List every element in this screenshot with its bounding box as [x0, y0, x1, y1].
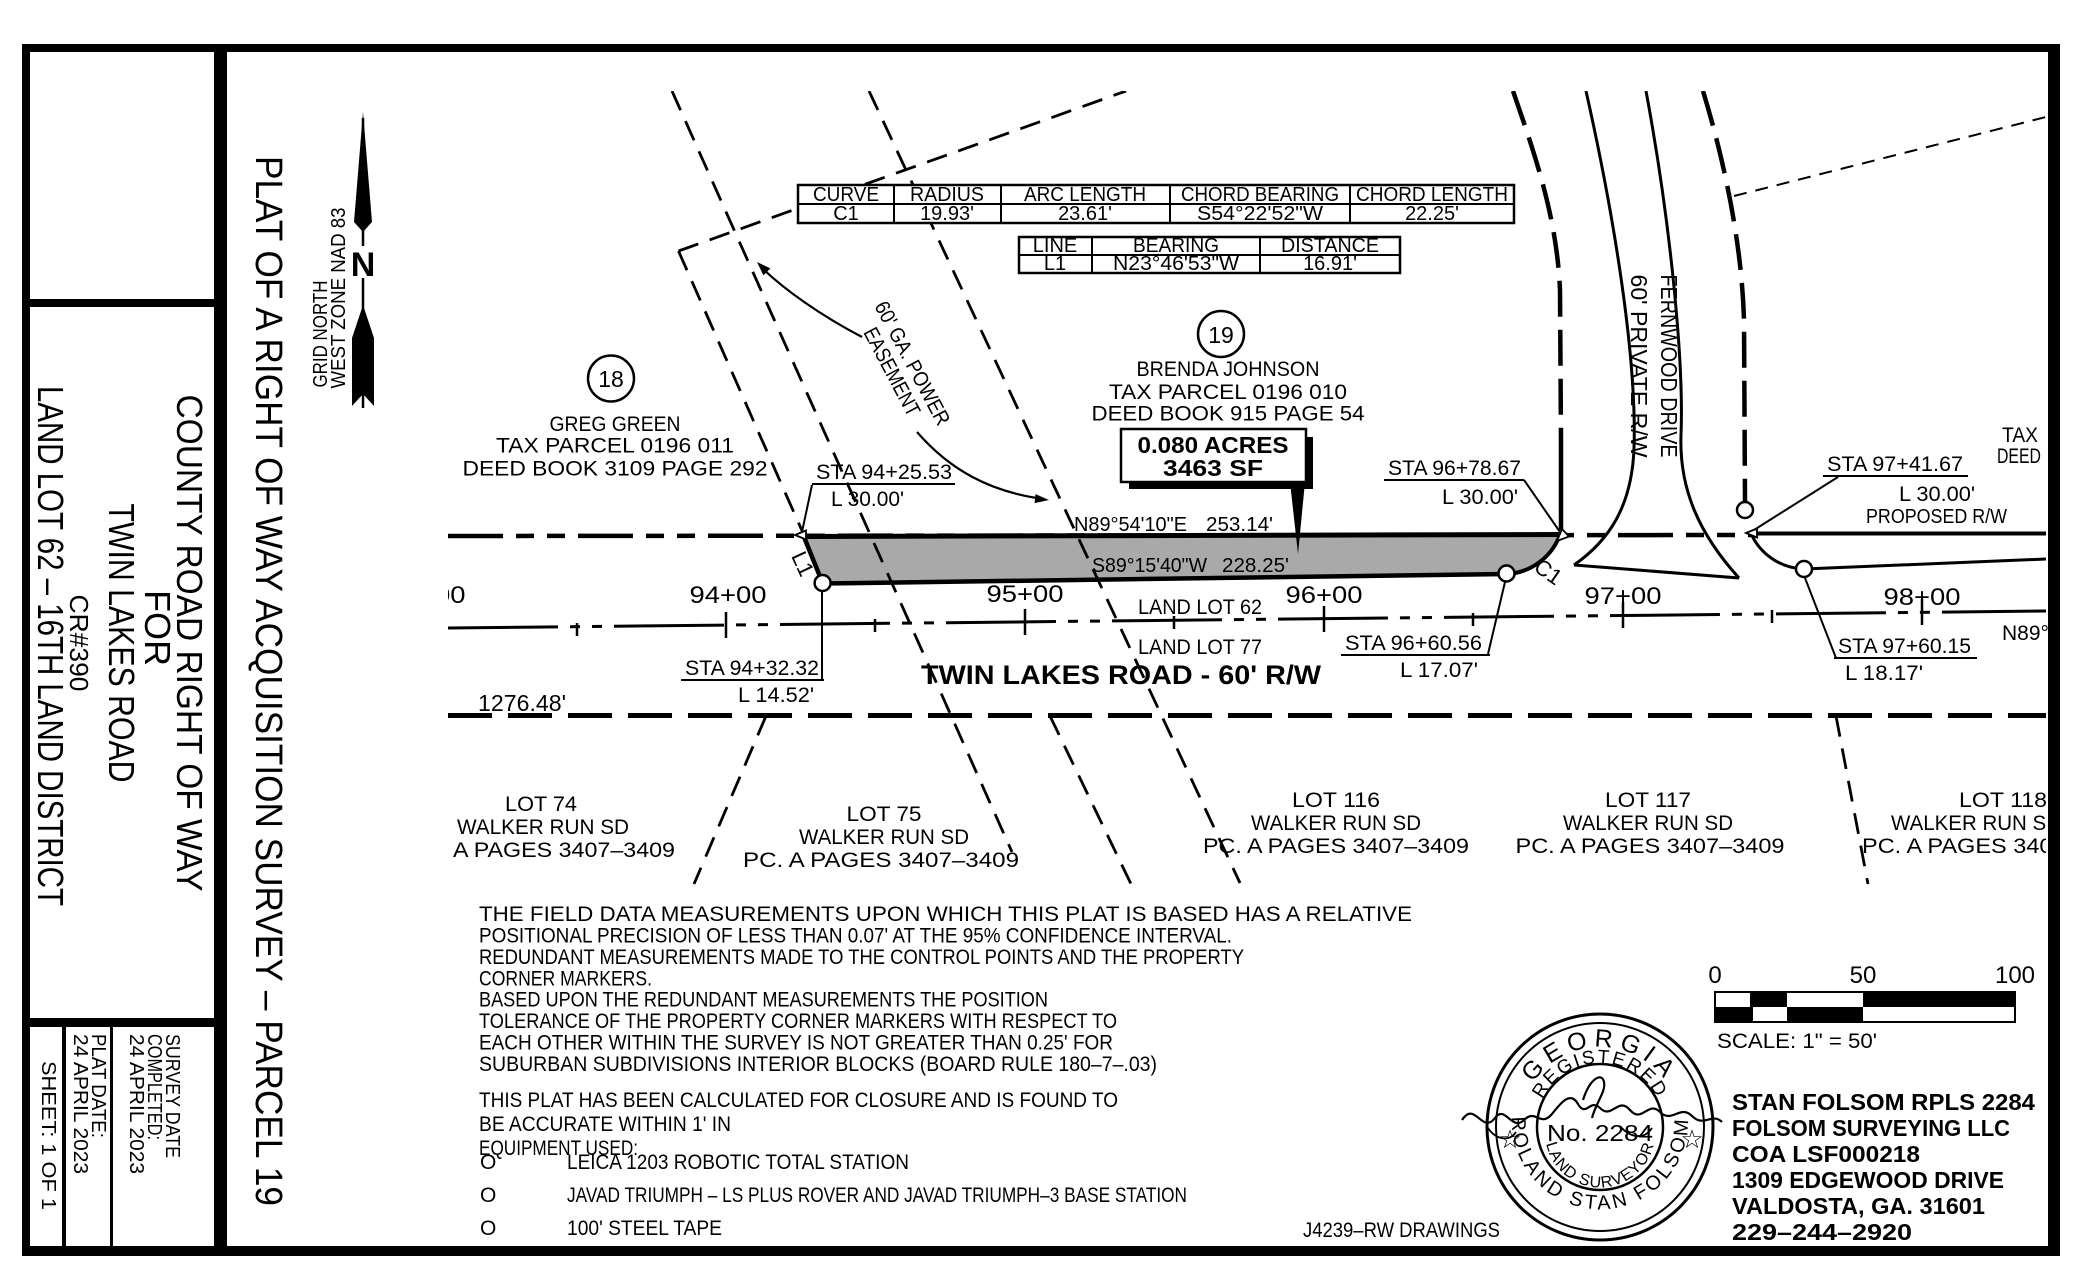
svg-text:LAND LOT 77: LAND LOT 77: [1138, 636, 1262, 659]
svg-text:60' PRIVATE R/W: 60' PRIVATE R/W: [1626, 275, 1652, 458]
svg-text:100' STEEL TAPE: 100' STEEL TAPE: [567, 1217, 722, 1240]
svg-text:253.14': 253.14': [1206, 514, 1273, 536]
svg-text:1276.48': 1276.48': [478, 690, 566, 716]
svg-text:97+00: 97+00: [1585, 583, 1662, 610]
svg-text:LAND LOT 62: LAND LOT 62: [1138, 596, 1262, 619]
svg-text:STA 97+41.67: STA 97+41.67: [1827, 453, 1963, 476]
svg-text:19.93': 19.93': [920, 203, 974, 225]
svg-text:PLAT OF A RIGHT OF WAY ACQUISI: PLAT OF A RIGHT OF WAY ACQUISITION SURVE…: [247, 156, 289, 1206]
svg-text:FERNWOOD DRIVE: FERNWOOD DRIVE: [1656, 275, 1682, 458]
svg-text:N89°: N89°: [2002, 622, 2049, 645]
svg-text:FOLSOM SURVEYING LLC: FOLSOM SURVEYING LLC: [1732, 1115, 2010, 1141]
svg-text:WALKER RUN SD: WALKER RUN SD: [1891, 812, 2061, 835]
svg-text:TAX PARCEL 0196 010: TAX PARCEL 0196 010: [1109, 381, 1347, 404]
svg-text:L 14.52': L 14.52': [738, 684, 814, 707]
svg-text:WALKER RUN SD: WALKER RUN SD: [1251, 812, 1421, 835]
svg-text:N23°46'53"W: N23°46'53"W: [1113, 253, 1239, 275]
svg-text:TOLERANCE OF THE PROPERTY CORN: TOLERANCE OF THE PROPERTY CORNER MARKERS…: [479, 1010, 1117, 1033]
svg-text:DEED BOOK 915 PAGE 54: DEED BOOK 915 PAGE 54: [1092, 403, 1365, 426]
svg-text:JAVAD TRIUMPH – LS PLUS ROVER: JAVAD TRIUMPH – LS PLUS ROVER AND JAVAD …: [567, 1184, 1187, 1207]
svg-text:STA 96+78.67: STA 96+78.67: [1388, 457, 1521, 480]
svg-text:100: 100: [1995, 962, 2035, 989]
svg-text:VALDOSTA, GA. 31601: VALDOSTA, GA. 31601: [1732, 1193, 1985, 1219]
svg-text:STAN FOLSOM RPLS 2284: STAN FOLSOM RPLS 2284: [1732, 1089, 2035, 1115]
svg-text:18: 18: [598, 366, 624, 392]
svg-text:WALKER RUN SD: WALKER RUN SD: [457, 816, 629, 839]
svg-text:STA 94+32.32: STA 94+32.32: [685, 657, 819, 680]
svg-text:98+00: 98+00: [1884, 584, 1961, 611]
svg-text:PROPOSED R/W: PROPOSED R/W: [1866, 506, 2007, 528]
svg-text:S54°22'52"W: S54°22'52"W: [1197, 203, 1323, 225]
svg-text:1309 EDGEWOOD DRIVE: 1309 EDGEWOOD DRIVE: [1732, 1167, 2004, 1193]
svg-text:POSITIONAL PRECISION OF LESS T: POSITIONAL PRECISION OF LESS THAN 0.07' …: [479, 925, 1232, 948]
svg-text:DEED BOOK 3109 PAGE 292: DEED BOOK 3109 PAGE 292: [463, 458, 768, 481]
svg-text:SCALE: 1" = 50': SCALE: 1" = 50': [1717, 1030, 1877, 1053]
svg-text:J4239–RW DRAWINGS: J4239–RW DRAWINGS: [1303, 1219, 1500, 1242]
svg-text:L 18.17': L 18.17': [1845, 662, 1923, 685]
svg-text:L 30.00': L 30.00': [1899, 483, 1975, 506]
svg-text:TWIN LAKES ROAD - 60' R/W: TWIN LAKES ROAD - 60' R/W: [921, 660, 1322, 690]
svg-text:WALKER RUN SD: WALKER RUN SD: [799, 826, 969, 849]
svg-text:94+00: 94+00: [690, 582, 767, 609]
svg-text:19: 19: [1208, 322, 1234, 348]
svg-text:24 APRIL 2023: 24 APRIL 2023: [69, 1034, 91, 1174]
svg-text:BE ACCURATE WITHIN 1' IN: BE ACCURATE WITHIN 1' IN: [479, 1113, 731, 1136]
svg-text:THE FIELD DATA MEASUREMENTS UP: THE FIELD DATA MEASUREMENTS UPON WHICH T…: [479, 903, 1412, 926]
svg-text:STA 94+25.53: STA 94+25.53: [816, 461, 952, 484]
svg-text:O: O: [480, 1217, 496, 1240]
svg-text:BRENDA JOHNSON: BRENDA JOHNSON: [1137, 358, 1320, 381]
svg-text:REDUNDANT MEASUREMENTS MADE TO: REDUNDANT MEASUREMENTS MADE TO THE CONTR…: [479, 946, 1244, 969]
svg-text:STA 96+60.56: STA 96+60.56: [1345, 632, 1482, 655]
svg-text:LOT 116: LOT 116: [1292, 789, 1380, 812]
svg-text:PC. A PAGES 3407–3409: PC. A PAGES 3407–3409: [1203, 835, 1469, 858]
svg-text:3463 SF: 3463 SF: [1163, 455, 1263, 481]
svg-text:LOT 75: LOT 75: [847, 803, 922, 826]
svg-text:0: 0: [1708, 962, 1721, 989]
svg-text:22.25': 22.25': [1405, 203, 1459, 225]
svg-text:O: O: [480, 1151, 496, 1174]
svg-text:LOT 118: LOT 118: [1959, 789, 2047, 812]
svg-text:23.61': 23.61': [1058, 203, 1112, 225]
svg-text:COA LSF000218: COA LSF000218: [1732, 1141, 1920, 1167]
svg-text:96+00: 96+00: [1286, 582, 1363, 609]
svg-text:L1: L1: [1044, 253, 1066, 275]
svg-text:LEICA 1203 ROBOTIC TOTAL STATI: LEICA 1203 ROBOTIC TOTAL STATION: [567, 1151, 909, 1174]
svg-text:PC. A PAGES 3407–3409: PC. A PAGES 3407–3409: [743, 849, 1019, 872]
svg-text:SUBURBAN SUBDIVISIONS INTERIOR: SUBURBAN SUBDIVISIONS INTERIOR BLOCKS (B…: [479, 1053, 1157, 1076]
svg-text:TWIN LAKES ROAD: TWIN LAKES ROAD: [101, 504, 142, 783]
svg-text:16.91': 16.91': [1303, 253, 1357, 275]
svg-text:228.25': 228.25': [1222, 555, 1289, 577]
svg-text:PC. A PAGES 3407–3409: PC. A PAGES 3407–3409: [1516, 835, 1785, 858]
svg-text:95+00: 95+00: [987, 581, 1064, 608]
svg-text:WEST ZONE NAD 83: WEST ZONE NAD 83: [328, 208, 350, 389]
svg-text:O: O: [480, 1184, 496, 1207]
svg-text:L 17.07': L 17.07': [1400, 659, 1478, 682]
svg-text:EACH OTHER WITHIN THE SURVEY I: EACH OTHER WITHIN THE SURVEY IS NOT GREA…: [479, 1032, 1113, 1055]
svg-text:THIS PLAT HAS BEEN CALCULATED: THIS PLAT HAS BEEN CALCULATED FOR CLOSUR…: [479, 1089, 1118, 1112]
svg-text:229–244–2920: 229–244–2920: [1732, 1219, 1912, 1245]
svg-text:GREG GREEN: GREG GREEN: [550, 413, 681, 436]
svg-text:S89°15'40"W: S89°15'40"W: [1092, 555, 1207, 577]
svg-text:L 30.00': L 30.00': [831, 488, 904, 511]
svg-text:TAX: TAX: [2002, 424, 2038, 447]
svg-text:DEED: DEED: [1997, 445, 2041, 468]
svg-text:CR#390: CR#390: [64, 595, 94, 692]
svg-text:N: N: [351, 246, 376, 284]
svg-text:WALKER RUN SD: WALKER RUN SD: [1563, 812, 1733, 835]
svg-text:A PAGES 3407–3409: A PAGES 3407–3409: [453, 839, 675, 862]
svg-text:SHEET: 1 OF 1: SHEET: 1 OF 1: [37, 1061, 59, 1210]
svg-text:No. 2284: No. 2284: [1547, 1120, 1653, 1146]
svg-text:50: 50: [1850, 962, 1877, 989]
svg-text:24 APRIL 2023: 24 APRIL 2023: [125, 1034, 147, 1174]
svg-text:☆: ☆: [1680, 1124, 1703, 1154]
svg-text:LOT 117: LOT 117: [1605, 789, 1691, 812]
svg-text:TAX PARCEL 0196 011: TAX PARCEL 0196 011: [496, 435, 734, 458]
svg-text:STA 97+60.15: STA 97+60.15: [1838, 635, 1971, 658]
svg-text:L 30.00': L 30.00': [1442, 486, 1518, 509]
svg-text:BASED UPON THE REDUNDANT MEASU: BASED UPON THE REDUNDANT MEASUREMENTS TH…: [479, 989, 1048, 1012]
svg-text:COUNTY ROAD RIGHT OF WAY: COUNTY ROAD RIGHT OF WAY: [169, 395, 210, 892]
svg-text:C1: C1: [833, 203, 859, 225]
svg-text:CORNER MARKERS.: CORNER MARKERS.: [479, 968, 652, 991]
svg-text:N89°54'10"E: N89°54'10"E: [1074, 514, 1187, 536]
svg-text:LOT 74: LOT 74: [505, 793, 577, 816]
